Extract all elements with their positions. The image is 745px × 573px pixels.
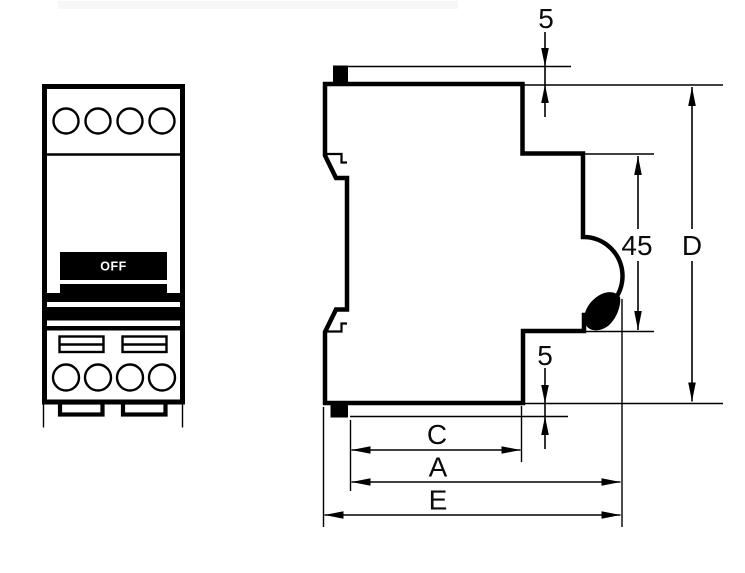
din-clip-tab-bottom	[331, 403, 349, 418]
toggle-rail-left	[47, 252, 60, 293]
dim-label-depth-c: C	[427, 419, 447, 450]
terminal-screw	[53, 365, 79, 391]
terminal-screw	[117, 365, 143, 391]
terminal-screw	[149, 365, 175, 391]
terminal-screw	[86, 109, 111, 134]
mounting-foot-left	[60, 403, 103, 415]
dim-label-depth-a: A	[429, 452, 448, 483]
mounting-foot-right	[123, 403, 166, 415]
toggle-groove	[60, 280, 167, 284]
dim-label-depth-e: E	[429, 485, 448, 516]
din-clip-tab-top	[333, 66, 348, 85]
scan-artifact	[58, 1, 458, 9]
dim-label-top-clip: 5	[538, 3, 554, 34]
front-band-upper	[47, 307, 180, 321]
front-view: OFF	[44, 87, 183, 428]
terminal-screw	[54, 109, 79, 134]
dim-label-bottom-clip: 5	[537, 340, 553, 371]
drawing-canvas: OFF	[0, 0, 745, 573]
toggle-rail-right	[167, 252, 180, 293]
breaker-dimension-drawing: OFF	[0, 0, 745, 573]
dim-label-front-panel: 45	[621, 230, 652, 261]
dim-label-body-height: D	[682, 230, 702, 261]
terminal-screw	[85, 365, 111, 391]
front-band-lower	[47, 326, 180, 331]
toggle-label: OFF	[100, 260, 127, 274]
terminal-screw	[150, 109, 175, 134]
terminal-screw	[118, 109, 143, 134]
